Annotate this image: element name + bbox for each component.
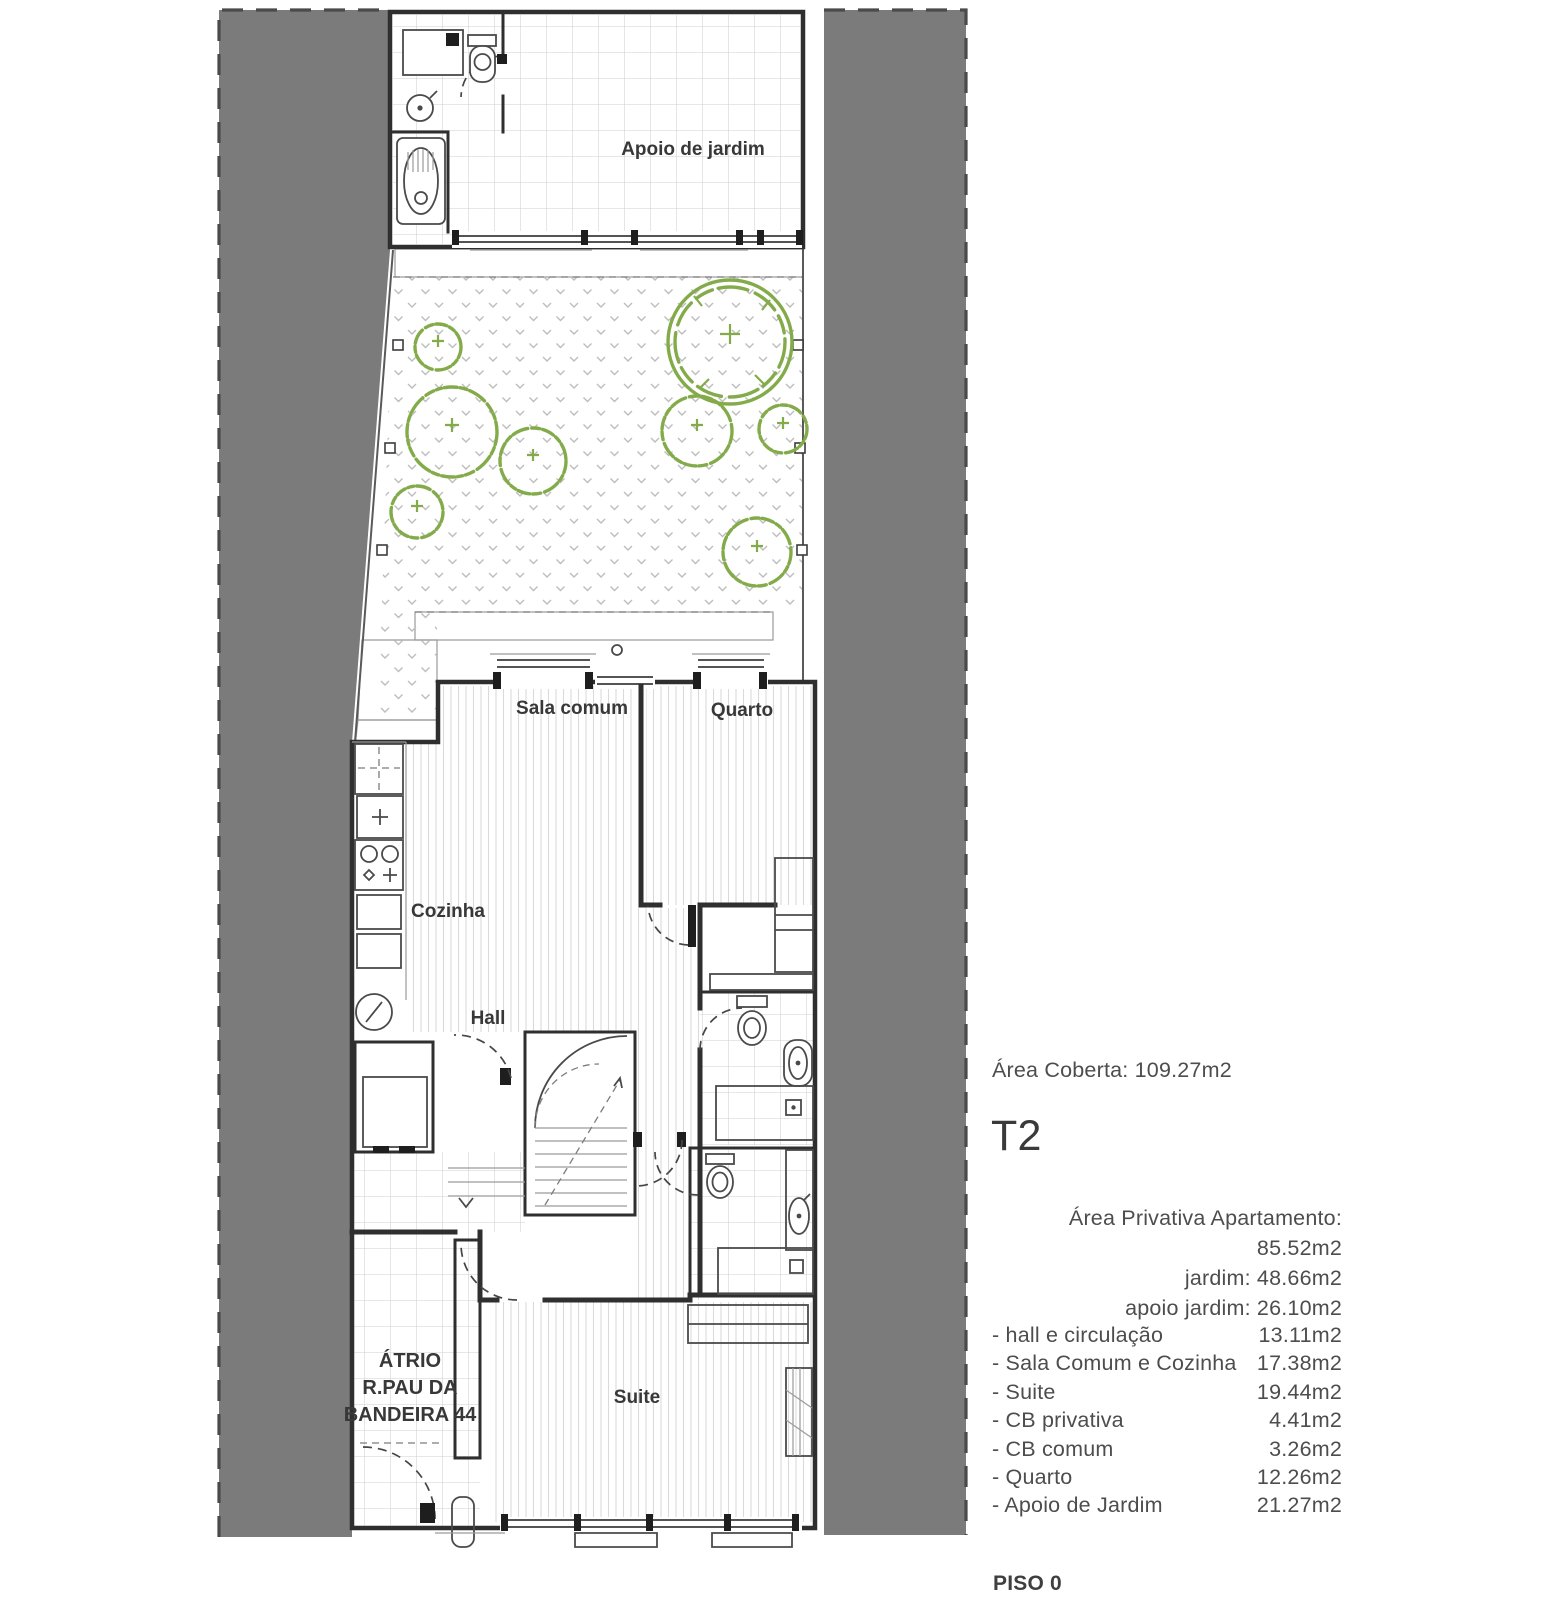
room-area-row: - hall e circulação 13.11m2 — [992, 1323, 1342, 1351]
apartment-building: Sala comum Quarto Cozinha Hall Suite ÁTR… — [344, 645, 815, 1547]
garden — [355, 247, 807, 747]
svg-text:BANDEIRA 44: BANDEIRA 44 — [344, 1404, 477, 1426]
private-area-line: Área Privativa Apartamento: 85.52m2 — [992, 1203, 1342, 1263]
room-area-label: - hall e circulação — [992, 1323, 1163, 1348]
room-area-row: - CB privativa 4.41m2 — [992, 1408, 1342, 1436]
apoio-building: Apoio de jardim — [390, 12, 803, 250]
private-area-line: jardim: 48.66m2 — [992, 1263, 1342, 1293]
room-label-apoio: Apoio de jardim — [621, 139, 765, 160]
room-label-sala: Sala comum — [516, 698, 628, 719]
room-area-row: - CB comum 3.26m2 — [992, 1437, 1342, 1465]
covered-area-text: Área Coberta: 109.27m2 — [992, 1058, 1344, 1083]
room-area-label: - Apoio de Jardim — [992, 1493, 1163, 1518]
washing-machine-symbol — [403, 30, 463, 75]
apoio-windows — [452, 230, 803, 250]
bathtub-symbol — [397, 138, 445, 224]
room-area-row: - Suite 19.44m2 — [992, 1380, 1342, 1408]
floor-level-label: PISO 0 — [993, 1572, 1062, 1596]
room-area-value: 21.27m2 — [1257, 1493, 1342, 1518]
room-area-row: - Sala Comum e Cozinha 17.38m2 — [992, 1351, 1342, 1379]
svg-text:R.PAU DA: R.PAU DA — [362, 1377, 457, 1399]
room-area-row: - Apoio de Jardim 21.27m2 — [992, 1493, 1342, 1521]
garden-door — [595, 645, 655, 689]
neighbor-building-right — [824, 10, 966, 1535]
lawn — [378, 277, 803, 718]
svg-text:ÁTRIO: ÁTRIO — [379, 1349, 441, 1372]
room-area-value: 3.26m2 — [1269, 1437, 1342, 1462]
floor-plan-page: Apoio de jardim — [0, 0, 1556, 1609]
stove-symbol — [355, 840, 403, 890]
sala-window — [490, 654, 596, 689]
toilet-symbol — [468, 35, 496, 82]
room-label-cozinha: Cozinha — [411, 901, 485, 922]
floor-hall — [352, 1152, 525, 1232]
room-area-value: 4.41m2 — [1269, 1408, 1342, 1433]
kitchen-sink-symbol — [357, 796, 403, 838]
room-label-quarto: Quarto — [711, 700, 773, 721]
room-area-value: 19.44m2 — [1257, 1380, 1342, 1405]
room-areas-list: - hall e circulação 13.11m2 - Sala Comum… — [992, 1323, 1342, 1522]
room-area-label: - Suite — [992, 1380, 1056, 1405]
private-areas-block: Área Privativa Apartamento: 85.52m2 jard… — [992, 1203, 1342, 1323]
room-area-value: 17.38m2 — [1257, 1351, 1342, 1376]
room-label-suite: Suite — [614, 1387, 660, 1408]
unit-type-label: T2 — [991, 1112, 1042, 1161]
toilet-symbol — [706, 1154, 734, 1198]
floor-sala-cozinha — [410, 686, 636, 1032]
room-area-label: - CB privativa — [992, 1408, 1124, 1433]
floor-plan-drawing: Apoio de jardim — [0, 0, 980, 1609]
room-area-label: - CB comum — [992, 1437, 1113, 1462]
room-area-label: - Quarto — [992, 1465, 1072, 1490]
room-label-hall: Hall — [471, 1008, 506, 1029]
room-area-label: - Sala Comum e Cozinha — [992, 1351, 1237, 1376]
room-area-value: 13.11m2 — [1259, 1323, 1342, 1348]
private-area-line: apoio jardim: 26.10m2 — [992, 1293, 1342, 1323]
floor-suite — [495, 1302, 813, 1522]
sink-symbol — [784, 1040, 812, 1086]
quarto-window — [692, 654, 770, 689]
toilet-symbol — [737, 996, 767, 1045]
room-area-row: - Quarto 12.26m2 — [992, 1465, 1342, 1493]
room-area-value: 12.26m2 — [1257, 1465, 1342, 1490]
